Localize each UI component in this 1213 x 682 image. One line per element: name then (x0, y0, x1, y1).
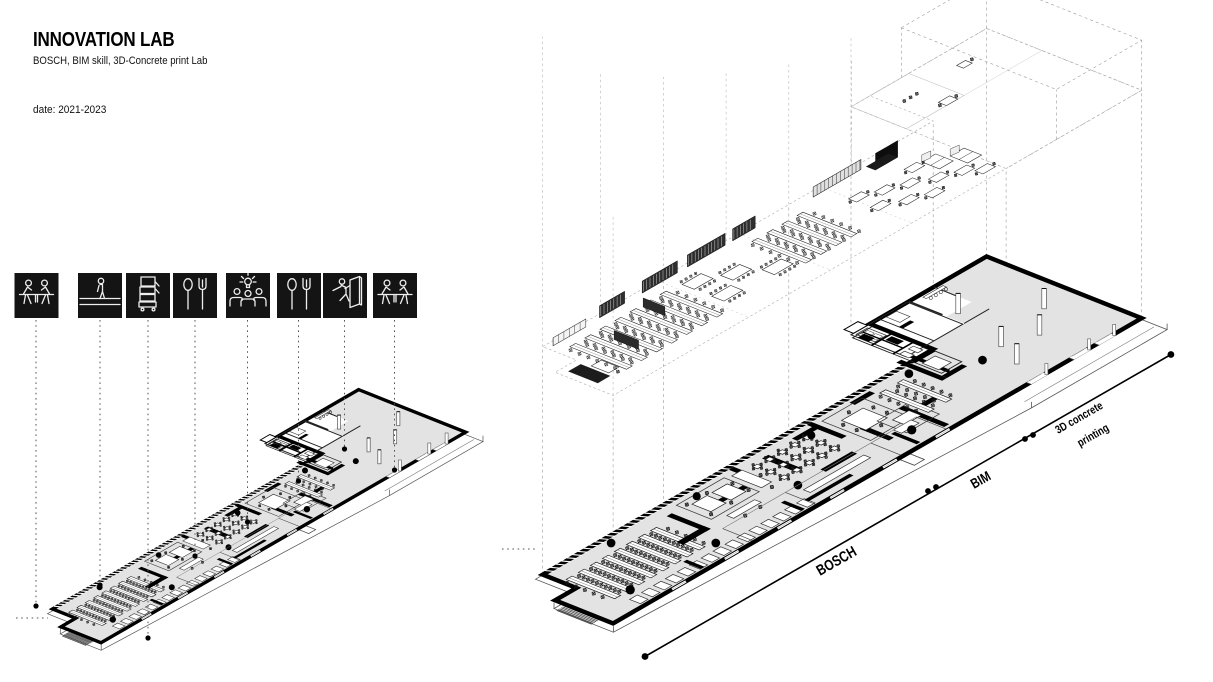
svg-text:BIM: BIM (968, 468, 993, 492)
svg-text:BOSCH: BOSCH (813, 543, 859, 579)
svg-text:printing: printing (1076, 422, 1112, 450)
